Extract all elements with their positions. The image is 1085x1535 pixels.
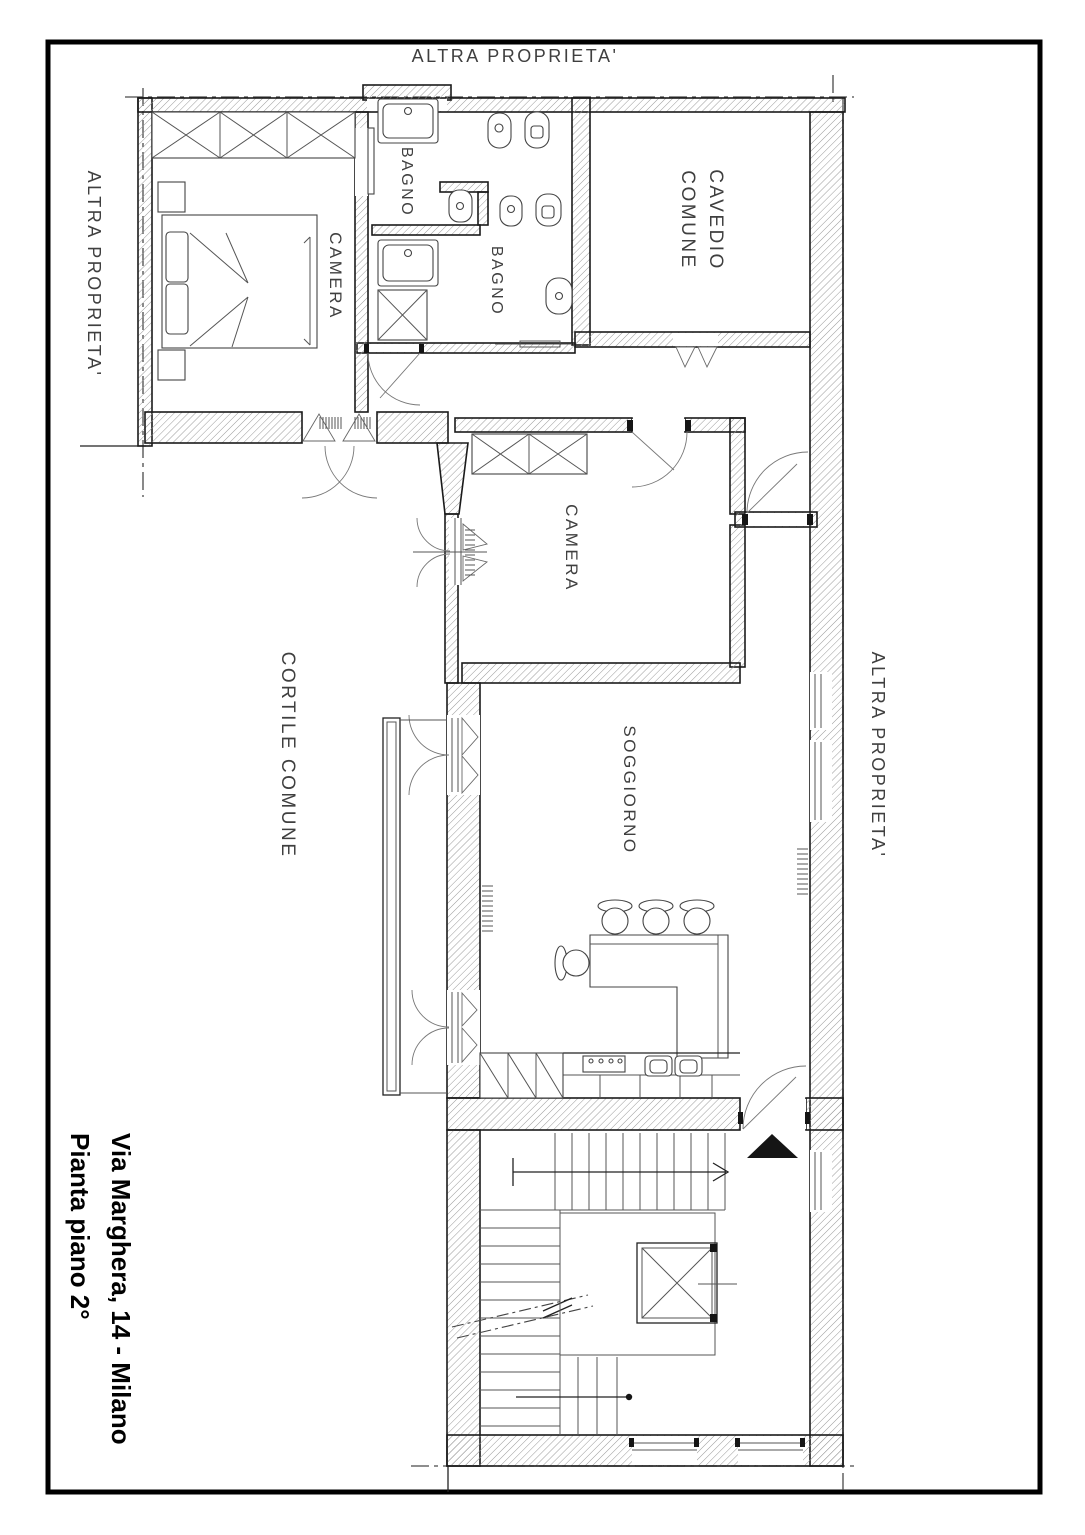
label-cavedio-line2: COMUNE [677, 170, 698, 269]
label-altra-proprieta-right: ALTRA PROPRIETA' [868, 652, 888, 859]
label-soggiorno: SOGGIORNO [620, 725, 639, 854]
label-cavedio-line1: CAVEDIO [705, 169, 726, 271]
label-camera-nord: CAMERA [326, 232, 345, 320]
label-bagno-2: BAGNO [488, 246, 505, 316]
floor-plan-page: ALTRA PROPRIETA' ALTRA PROPRIETA' ALTRA … [0, 0, 1085, 1535]
furniture-camera-centro [472, 434, 587, 474]
label-altra-proprieta-left: ALTRA PROPRIETA' [84, 171, 104, 378]
label-cortile-comune: CORTILE COMUNE [277, 652, 298, 859]
plan-title-line2: Pianta piano 2° [65, 1133, 95, 1320]
label-bagno-1: BAGNO [398, 147, 415, 217]
floor-plan-svg: ALTRA PROPRIETA' ALTRA PROPRIETA' ALTRA … [0, 0, 1085, 1535]
label-camera-centro: CAMERA [562, 504, 581, 592]
label-altra-proprieta-top: ALTRA PROPRIETA' [412, 46, 619, 66]
plan-title-line1: Via Marghera, 14 - Milano [106, 1133, 136, 1445]
